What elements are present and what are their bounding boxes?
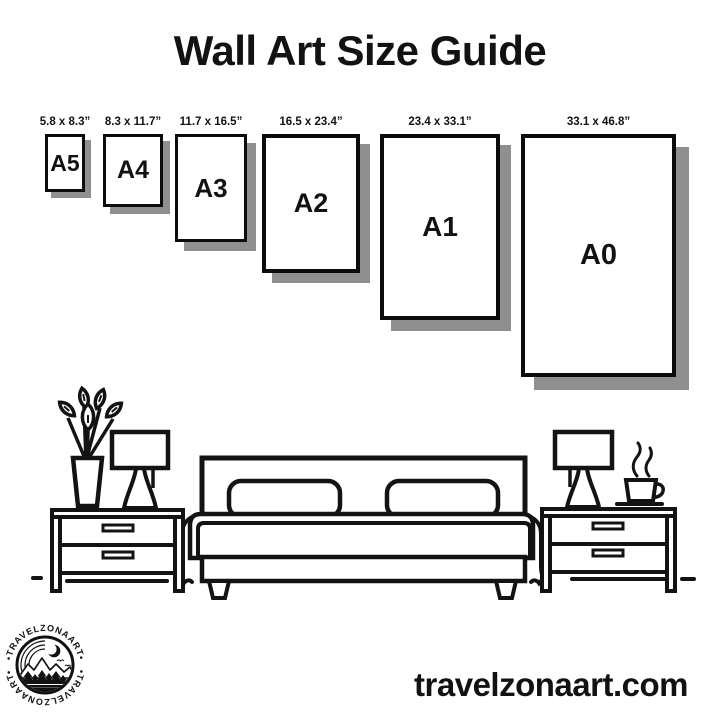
size-name: A3 xyxy=(194,173,227,204)
table-lamp-icon xyxy=(112,432,168,508)
size-dimensions-label: 33.1 x 46.8” xyxy=(444,112,720,132)
size-frame: A5 xyxy=(45,134,85,192)
size-name: A1 xyxy=(422,211,458,243)
size-frame: A3 xyxy=(175,134,247,242)
size-frame-group-a2: 16.5 x 23.4” A2 xyxy=(262,112,360,273)
size-frame-group-a1: 23.4 x 33.1” A1 xyxy=(380,112,500,320)
size-frame: A0 xyxy=(521,134,676,377)
website-url: travelzonaart.com xyxy=(401,666,701,704)
size-name: A2 xyxy=(294,188,329,219)
bedroom-illustration xyxy=(0,385,720,615)
pillow-icon xyxy=(387,481,498,517)
nightstand-icon xyxy=(52,510,183,591)
bed-icon xyxy=(176,458,547,598)
travelzonaart-logo: •TRAVELZONAART• •TRAVELZONAART• xyxy=(1,621,89,709)
pillow-icon xyxy=(229,481,340,517)
page-title: Wall Art Size Guide xyxy=(0,28,720,74)
size-frame: A1 xyxy=(380,134,500,320)
size-frame-group-a0: 33.1 x 46.8” A0 xyxy=(521,112,676,377)
size-name: A0 xyxy=(580,239,617,272)
size-name: A4 xyxy=(117,156,149,185)
coffee-cup-icon xyxy=(617,443,663,504)
size-frame: A2 xyxy=(262,134,360,273)
wall-art-size-guide-poster: Wall Art Size Guide 5.8 x 8.3” A5 8.3 x … xyxy=(0,0,720,720)
size-name: A5 xyxy=(50,150,79,177)
table-lamp-icon xyxy=(555,432,612,507)
nightstand-icon xyxy=(542,509,675,591)
size-frame: A4 xyxy=(103,134,163,207)
